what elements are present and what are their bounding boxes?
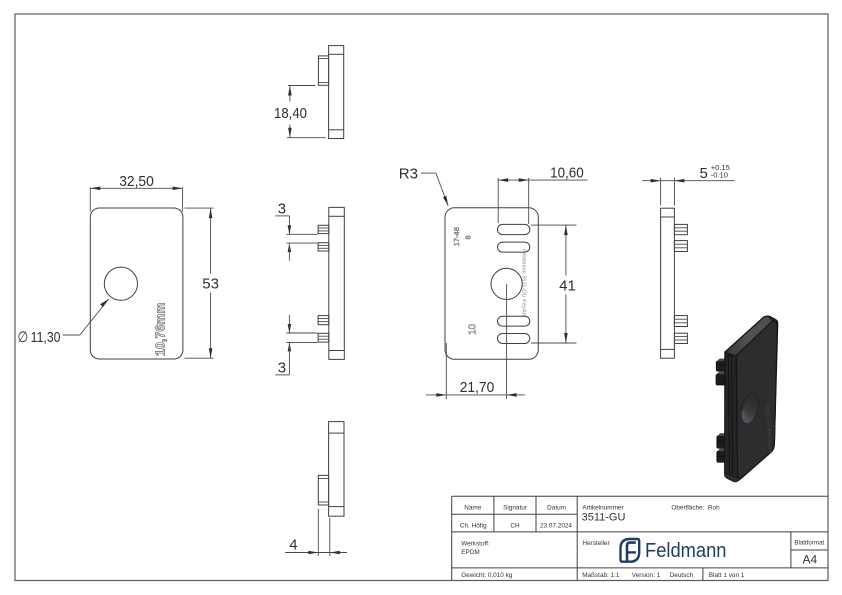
svg-text:Oberfläche: Roh: Oberfläche: Roh bbox=[671, 505, 720, 512]
svg-text:10,76mm: 10,76mm bbox=[153, 302, 167, 356]
svg-text:Version: 1: Version: 1 bbox=[632, 572, 661, 579]
svg-text:Deutsch: Deutsch bbox=[670, 572, 694, 579]
svg-text:Signatur: Signatur bbox=[503, 505, 528, 512]
svg-text:3: 3 bbox=[278, 201, 286, 218]
svg-text:Feldmann 3511-GU KeyArt: Feldmann 3511-GU KeyArt bbox=[521, 249, 527, 316]
svg-text:CH: CH bbox=[510, 523, 520, 530]
svg-text:A4: A4 bbox=[802, 553, 817, 567]
svg-text:Gewicht: 0,010 kg: Gewicht: 0,010 kg bbox=[461, 572, 513, 579]
svg-text:3: 3 bbox=[278, 360, 286, 377]
svg-text:23.07.2024: 23.07.2024 bbox=[540, 523, 572, 530]
svg-text:4: 4 bbox=[289, 537, 297, 554]
svg-text:41: 41 bbox=[559, 277, 576, 294]
svg-text:18,40: 18,40 bbox=[274, 105, 307, 122]
svg-text:Maßstab: 1:1: Maßstab: 1:1 bbox=[582, 572, 620, 579]
svg-text:21,70: 21,70 bbox=[460, 379, 495, 396]
svg-text:10,60: 10,60 bbox=[550, 164, 584, 181]
svg-text:Datum: Datum bbox=[547, 505, 566, 512]
svg-text:Blattformat: Blattformat bbox=[794, 540, 824, 547]
svg-text:5: 5 bbox=[700, 165, 708, 182]
svg-text:R3: R3 bbox=[399, 166, 418, 183]
svg-text:32,50: 32,50 bbox=[119, 173, 154, 190]
svg-text:53: 53 bbox=[202, 275, 219, 292]
svg-text:Feldmann: Feldmann bbox=[645, 540, 727, 562]
svg-text:10: 10 bbox=[467, 324, 478, 336]
svg-text:17-48: 17-48 bbox=[452, 227, 461, 246]
svg-text:∅ 11,30: ∅ 11,30 bbox=[18, 329, 61, 346]
svg-text:8: 8 bbox=[464, 235, 473, 239]
svg-text:EPDM: EPDM bbox=[461, 549, 479, 556]
svg-text:Ch. Höfig: Ch. Höfig bbox=[460, 523, 487, 530]
svg-text:Werkstoff:: Werkstoff: bbox=[461, 541, 490, 548]
svg-text:Artikelnummer: Artikelnummer bbox=[582, 505, 624, 512]
svg-text:Name: Name bbox=[464, 505, 481, 512]
svg-text:Hersteller: Hersteller bbox=[582, 540, 610, 547]
svg-text:3511-GU: 3511-GU bbox=[582, 512, 626, 524]
svg-text:Blatt 1 von 1: Blatt 1 von 1 bbox=[709, 572, 745, 579]
svg-text:-0.10: -0.10 bbox=[711, 171, 728, 180]
